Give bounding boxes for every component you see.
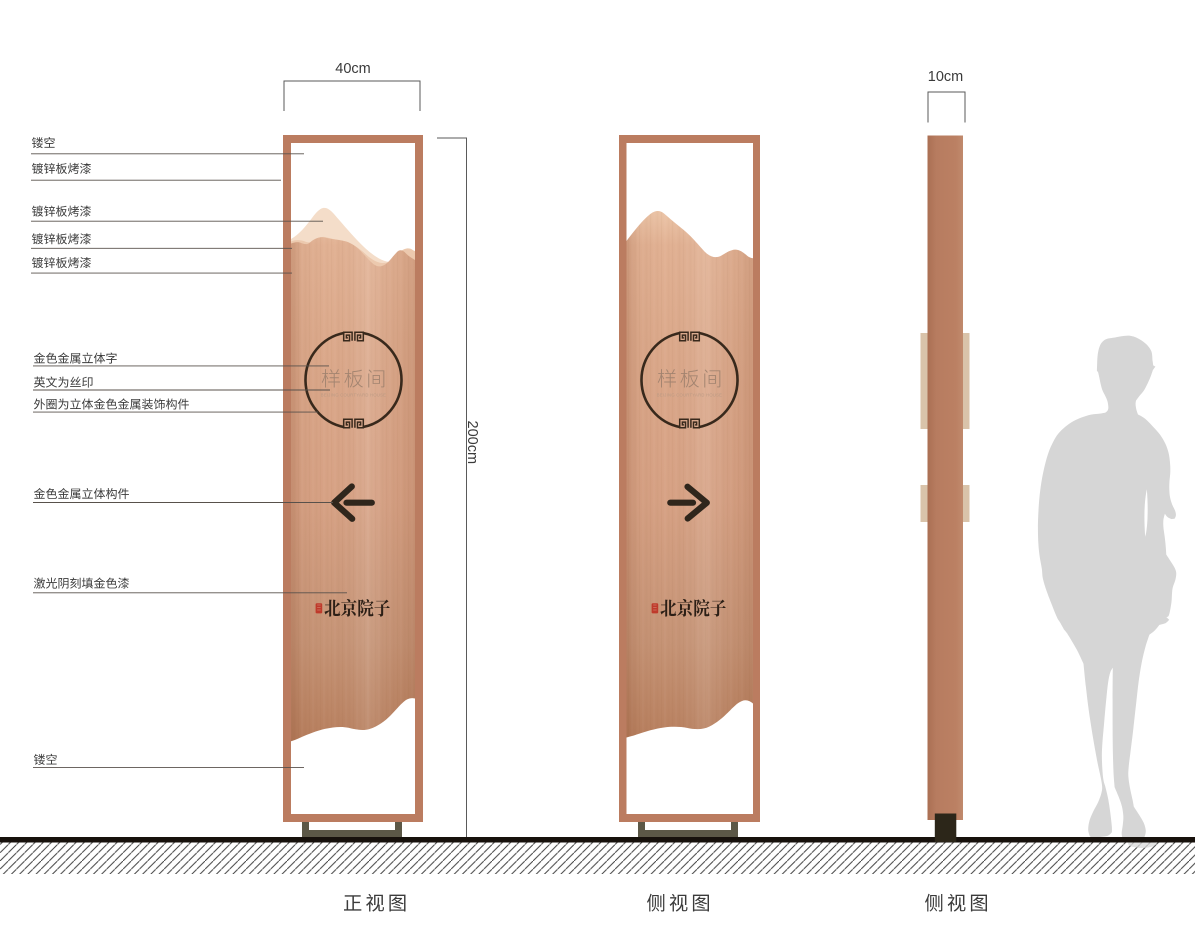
svg-text:BEIJING COURTYARD HOUSE: BEIJING COURTYARD HOUSE [321,393,386,398]
svg-text:BEIJING COURTYARD HOUSE: BEIJING COURTYARD HOUSE [657,393,722,398]
svg-text:10cm: 10cm [928,69,963,85]
svg-text:200cm: 200cm [464,421,480,465]
svg-text:40cm: 40cm [335,61,370,77]
